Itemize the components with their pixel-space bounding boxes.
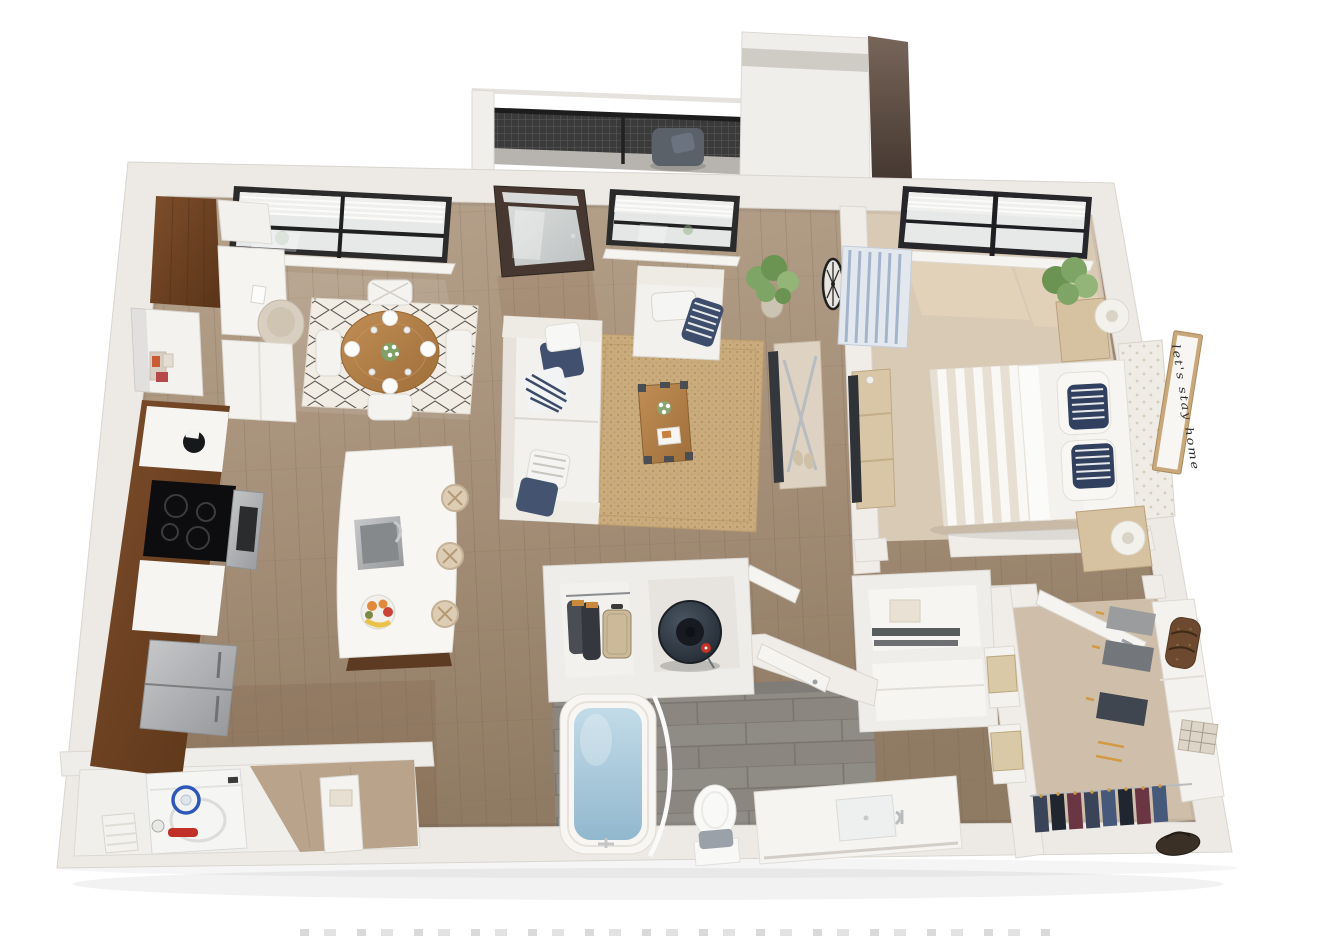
linen-closet bbox=[852, 570, 998, 732]
dial bbox=[152, 820, 164, 832]
cross-back-chair bbox=[446, 330, 472, 376]
place-setting bbox=[383, 311, 398, 326]
upper-cabinet bbox=[218, 200, 272, 244]
white-armchair bbox=[633, 266, 725, 360]
storage-box bbox=[987, 655, 1017, 693]
place-setting bbox=[383, 379, 398, 394]
walnut-pantry bbox=[150, 196, 221, 308]
dresser-console bbox=[848, 369, 895, 509]
soaking-tub bbox=[560, 694, 656, 854]
white-sofa bbox=[500, 316, 602, 524]
floor-plan-rendering: let's stay home bbox=[0, 0, 1336, 936]
place-setting bbox=[421, 342, 436, 357]
knob bbox=[866, 376, 874, 384]
toilet bbox=[694, 785, 740, 866]
display-niche bbox=[131, 308, 203, 396]
washing-machine bbox=[146, 769, 247, 854]
folded-towel bbox=[890, 600, 920, 622]
storage-box bbox=[991, 731, 1024, 771]
wall-chase bbox=[740, 32, 912, 180]
glass-entry-door bbox=[494, 186, 594, 277]
navy-striped-pillow bbox=[1067, 383, 1109, 430]
nightstand bbox=[1076, 506, 1152, 572]
place-setting bbox=[345, 342, 360, 357]
suitcase-handle bbox=[611, 604, 623, 609]
door-handle bbox=[813, 680, 818, 685]
fruit-bowl bbox=[361, 595, 395, 629]
cross-back-chair bbox=[316, 330, 341, 376]
door-handle bbox=[571, 234, 576, 239]
striped-duvet bbox=[930, 365, 1034, 526]
floor-plan-canvas: let's stay home bbox=[0, 0, 1336, 936]
glass-cooktop bbox=[143, 480, 236, 562]
papers bbox=[251, 285, 266, 304]
cross-back-chair bbox=[368, 394, 412, 420]
balcony bbox=[472, 88, 760, 178]
red-handle bbox=[168, 828, 198, 837]
storage-cabinet bbox=[320, 775, 363, 853]
striped-pillow bbox=[544, 322, 581, 352]
towel bbox=[330, 790, 352, 806]
dark-shelves bbox=[872, 628, 960, 636]
vanity-counter bbox=[754, 776, 962, 864]
white-counter bbox=[132, 560, 225, 636]
trunk-coffee-table bbox=[638, 381, 693, 464]
bath-towel bbox=[698, 829, 733, 850]
flower-vase bbox=[657, 401, 671, 415]
round-oak-table bbox=[341, 311, 439, 394]
plaid-blanket bbox=[1178, 720, 1218, 755]
hanging-coat bbox=[581, 602, 601, 661]
navy-striped-pillow bbox=[1071, 443, 1115, 489]
flower-centerpiece bbox=[381, 343, 399, 361]
media-console bbox=[768, 341, 826, 489]
striped-accent-chair bbox=[838, 246, 912, 348]
cropped-caption-marks bbox=[300, 929, 1050, 936]
